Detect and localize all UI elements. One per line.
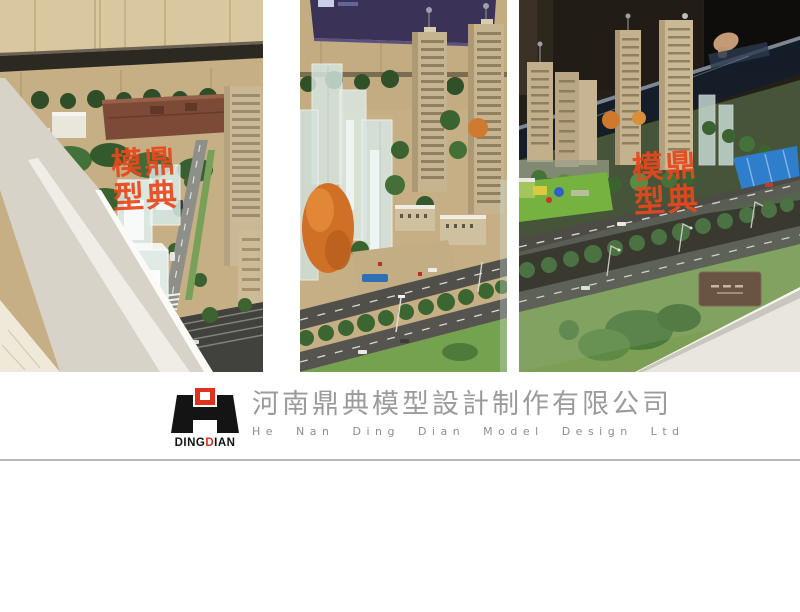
autumn-tree <box>302 183 354 273</box>
model-photo-center <box>300 0 507 372</box>
logo-word-seg2: D <box>205 437 214 449</box>
dingdian-logo-icon <box>169 388 241 435</box>
tower-1 <box>412 7 447 192</box>
company-name-block: 河南鼎典模型設計制作有限公司 He Nan Ding Dian Model De… <box>252 388 685 438</box>
logo-wordmark: DINGDIAN <box>175 437 236 449</box>
company-name-english: He Nan Ding Dian Model Design Ltd <box>252 425 685 438</box>
glass-case-edge <box>500 180 507 372</box>
tower-right <box>659 13 693 170</box>
tower-2 <box>468 3 504 214</box>
model-photo-right-art <box>519 0 800 372</box>
model-photo-right: 模 鼎 型 典 <box>519 0 800 372</box>
model-photo-left-art <box>0 0 263 372</box>
promo-page: 模 鼎 型 典 <box>0 0 800 612</box>
company-footer: DINGDIAN 河南鼎典模型設計制作有限公司 He Nan Ding Dian… <box>167 388 685 449</box>
brick-building <box>102 94 229 140</box>
logo-word-seg3: IAN <box>214 437 235 449</box>
logo-word-seg1: DING <box>175 437 206 449</box>
company-name-chinese: 河南鼎典模型設計制作有限公司 <box>252 388 685 422</box>
tower-right <box>224 86 263 325</box>
tower-mid <box>615 14 641 166</box>
dingdian-logo: DINGDIAN <box>167 388 243 449</box>
model-photo-left: 模 鼎 型 典 <box>0 0 263 372</box>
model-photo-center-art <box>300 0 507 372</box>
footer-divider-line <box>0 459 800 461</box>
